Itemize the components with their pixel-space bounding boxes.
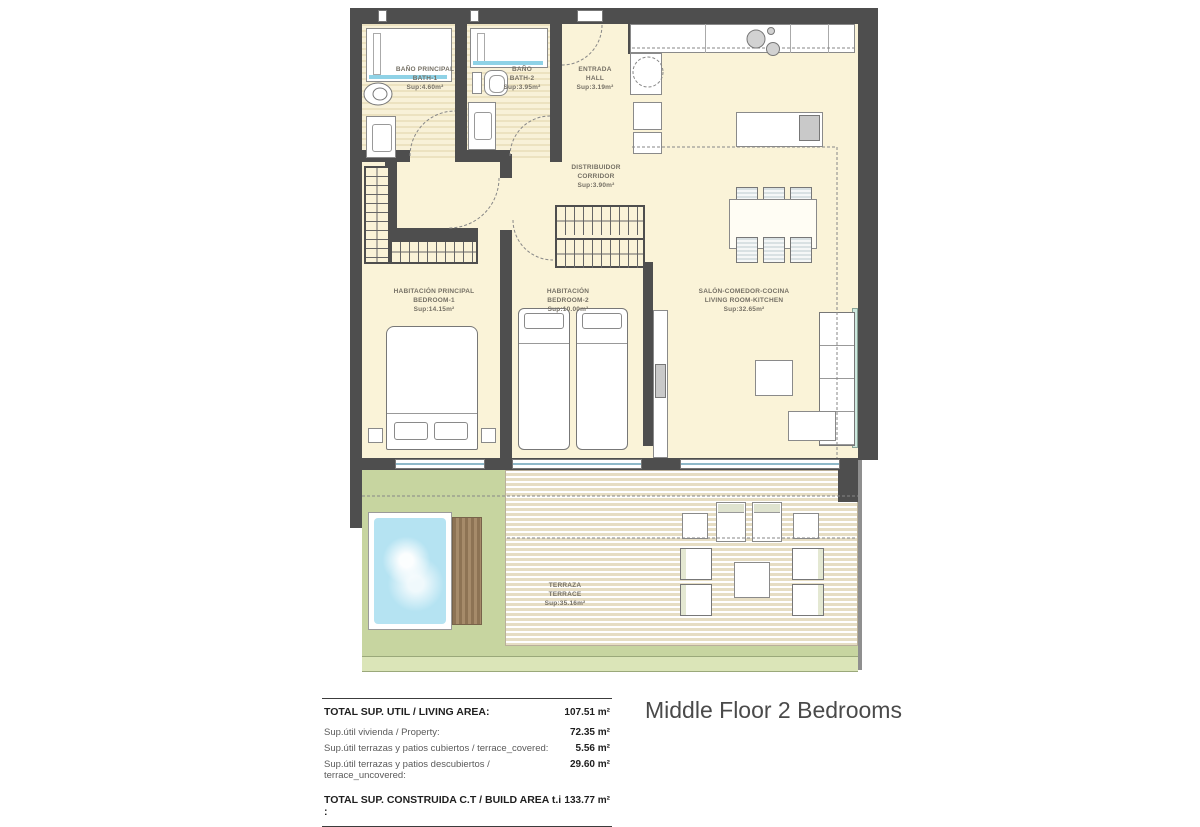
wall-corridor-a — [500, 154, 512, 178]
summary-value: 133.77 m² — [564, 795, 610, 806]
room-name-en: BEDROOM-2 — [508, 297, 628, 306]
tv — [655, 364, 666, 398]
room-area: Sup:35.16m² — [515, 600, 615, 609]
room-area: Sup:14.15m² — [374, 306, 494, 315]
bed-fold-line — [577, 343, 627, 344]
terrace-table — [734, 562, 770, 598]
page: { "title": "Middle Floor 2 Bedrooms", "r… — [0, 0, 1200, 800]
wall-bedroom1-closet — [390, 228, 478, 240]
bed-fold-line — [387, 413, 477, 414]
terrace-armchair — [792, 584, 824, 616]
summary-row-terrace-covered: Sup.útil terrazas y patios cubiertos / t… — [322, 740, 612, 756]
room-label-bedroom1: HABITACIÓN PRINCIPAL BEDROOM-1 Sup:14.15… — [374, 288, 494, 314]
bedroom1-closet — [390, 240, 478, 264]
bath2-sink-basin — [474, 112, 492, 140]
room-name-en: TERRACE — [515, 591, 615, 600]
room-label-bath1: BAÑO PRINCIPAL BATH-1 Sup:4.60m² — [380, 66, 470, 92]
wall-left — [350, 8, 362, 528]
entrance-door-opening — [577, 10, 603, 22]
room-name-en: CORRIDOR — [551, 173, 641, 182]
wall-top — [350, 8, 858, 24]
bed-fold-line — [519, 343, 569, 344]
terrace-armchair — [680, 548, 712, 580]
room-area: Sup:4.60m² — [380, 84, 470, 93]
terrace-armchair — [680, 584, 712, 616]
island-sink — [799, 115, 820, 141]
room-name-es: BAÑO PRINCIPAL — [380, 66, 470, 75]
room-name-es: TERRAZA — [515, 582, 615, 591]
bedroom2-wardrobe — [555, 205, 645, 268]
wall-right — [858, 8, 878, 460]
room-label-bedroom2: HABITACIÓN BEDROOM-2 Sup:10.00m² — [508, 288, 628, 314]
bath2-tub-shelf — [477, 33, 485, 63]
pillow — [524, 313, 564, 329]
summary-label: TOTAL SUP. UTIL / LIVING AREA: — [324, 706, 490, 718]
sofa-chaise — [788, 411, 836, 441]
summary-value: 29.60 m² — [570, 759, 610, 770]
summary-label: Sup.útil terrazas y patios cubiertos / t… — [324, 743, 548, 754]
sun-lounger — [716, 502, 746, 542]
bath2-window — [470, 10, 479, 22]
summary-label: Sup.útil vivienda / Property: — [324, 727, 440, 738]
room-name-en: BEDROOM-1 — [374, 297, 494, 306]
summary-value: 107.51 m² — [564, 707, 610, 718]
wall-bath-partition-2 — [550, 24, 562, 162]
terrace-side-table — [682, 513, 708, 539]
room-area: Sup:10.00m² — [508, 306, 628, 315]
summary-value: 72.35 m² — [570, 727, 610, 738]
bath2-tub-water-line — [473, 61, 543, 65]
sun-lounger — [752, 502, 782, 542]
kitchen-appliance — [633, 132, 662, 154]
floor-plan: BAÑO PRINCIPAL BATH-1 Sup:4.60m² BAÑO BA… — [350, 8, 878, 680]
wardrobe-row-2 — [557, 238, 643, 268]
kitchen-fridge — [633, 102, 662, 130]
bath1-sink-cabinet — [366, 116, 396, 158]
room-name-en: LIVING ROOM-KITCHEN — [684, 297, 804, 306]
room-name-es: ENTRADA — [550, 66, 640, 75]
nightstand — [481, 428, 496, 443]
living-terrace-window — [680, 459, 840, 469]
kitchen-counter — [630, 24, 855, 53]
plan-title: Middle Floor 2 Bedrooms — [645, 697, 902, 724]
wall-bedroom-divider — [500, 230, 512, 458]
summary-value: 5.56 m² — [576, 743, 610, 754]
room-label-hall: ENTRADA HALL Sup:3.19m² — [550, 66, 640, 92]
pillow — [394, 422, 428, 440]
terrace-right-border — [858, 460, 862, 670]
room-label-living: SALÓN-COMEDOR-COCINA LIVING ROOM-KITCHEN… — [684, 288, 804, 314]
bath1-window — [378, 10, 387, 22]
dining-chair — [790, 237, 812, 263]
room-name-es: HABITACIÓN — [508, 288, 628, 297]
dining-chair — [763, 237, 785, 263]
summary-label: Sup.útil terrazas y patios descubiertos … — [324, 759, 570, 781]
room-name-en: BATH-1 — [380, 75, 470, 84]
room-label-terrace: TERRAZA TERRACE Sup:35.16m² — [515, 582, 615, 608]
room-name-es: HABITACIÓN PRINCIPAL — [374, 288, 494, 297]
pillow — [582, 313, 622, 329]
bath2-bathtub — [470, 28, 548, 68]
dining-chair — [736, 237, 758, 263]
room-label-corridor: DISTRIBUIDOR CORRIDOR Sup:3.90m² — [551, 164, 641, 190]
pool — [368, 512, 452, 630]
room-name-es: DISTRIBUIDOR — [551, 164, 641, 173]
nightstand — [368, 428, 383, 443]
summary-row-total-util: TOTAL SUP. UTIL / LIVING AREA: 107.51 m² — [322, 699, 612, 724]
wall-bath-partition-1 — [455, 24, 467, 162]
terrace-armchair — [792, 548, 824, 580]
room-area: Sup:32.65m² — [684, 306, 804, 315]
single-bed — [518, 308, 570, 450]
room-area: Sup:3.19m² — [550, 84, 640, 93]
lounger-cushion — [718, 504, 744, 513]
kitchen-counter-seam — [705, 24, 706, 53]
bedroom2-terrace-window — [512, 459, 642, 469]
bedroom1-closet-left — [364, 166, 390, 264]
wardrobe-row-1 — [557, 207, 643, 235]
room-name-en: HALL — [550, 75, 640, 84]
coffee-table — [755, 360, 793, 396]
summary-label: TOTAL SUP. CONSTRUIDA C.T / BUILD AREA t… — [324, 794, 564, 818]
summary-row-terrace-uncovered: Sup.útil terrazas y patios descubiertos … — [322, 756, 612, 783]
wall-bedroom2-living — [643, 262, 653, 446]
kitchen-counter-seam-3 — [828, 24, 829, 53]
pool-water — [374, 518, 446, 624]
room-area: Sup:3.90m² — [551, 182, 641, 191]
room-name-es: SALÓN-COMEDOR-COCINA — [684, 288, 804, 297]
lounger-cushion — [754, 504, 780, 513]
bath2-sink-cabinet — [468, 102, 496, 150]
summary-row-property: Sup.útil vivienda / Property: 72.35 m² — [322, 724, 612, 740]
single-bed — [576, 308, 628, 450]
area-summary-table: TOTAL SUP. UTIL / LIVING AREA: 107.51 m²… — [322, 698, 612, 827]
pool-wood-deck — [452, 517, 482, 625]
bedroom1-terrace-window — [395, 459, 485, 469]
terrace-edge-strip — [362, 656, 858, 672]
summary-row-build-area: TOTAL SUP. CONSTRUIDA C.T / BUILD AREA t… — [322, 787, 612, 824]
terrace-side-table — [793, 513, 819, 539]
pillow — [434, 422, 468, 440]
bath1-sink-basin — [372, 124, 392, 152]
kitchen-counter-seam-2 — [790, 24, 791, 53]
